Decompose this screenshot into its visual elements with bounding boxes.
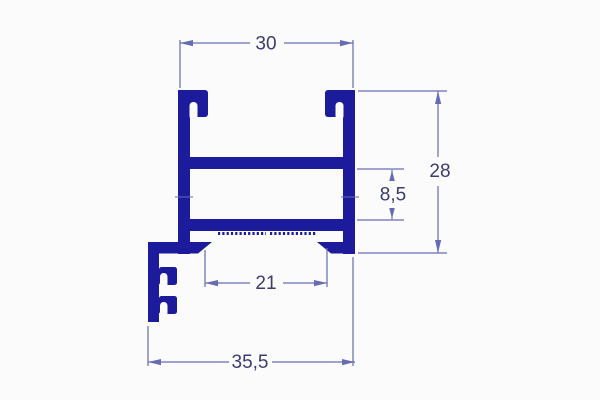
drawing-background [0, 0, 600, 400]
profile-drawing: 30 28 8,5 [0, 0, 600, 400]
bracket-bottom-stub-slot [160, 302, 168, 317]
dim-bottom-opening-label: 21 [255, 273, 276, 294]
top-left-hook-slot [190, 102, 198, 120]
top-right-hook-slot [336, 102, 344, 120]
technical-drawing-canvas: 30 28 8,5 [0, 0, 600, 400]
dim-overall-height-label: 28 [429, 161, 450, 182]
dim-top-width-label: 30 [255, 34, 276, 55]
dim-web-gap-label: 8,5 [380, 185, 406, 206]
bracket-middle-stub-slot [160, 273, 168, 288]
dim-overall-width-label: 35,5 [232, 352, 269, 373]
profile-middle-web [190, 157, 343, 169]
profile-lower-web [190, 219, 343, 231]
profile-side-bracket-bar [148, 242, 159, 322]
